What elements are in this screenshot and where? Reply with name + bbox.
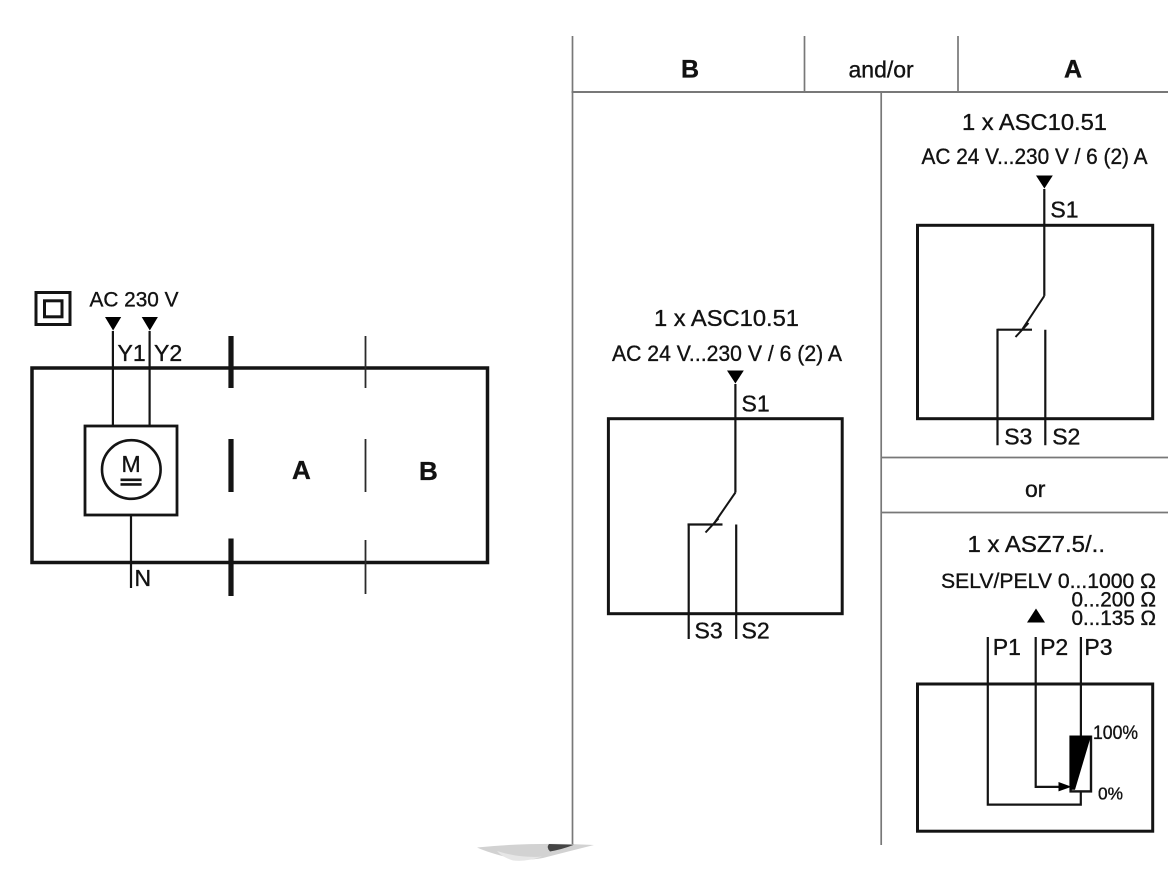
svg-text:A: A <box>292 455 311 485</box>
svg-text:P2: P2 <box>1040 634 1068 660</box>
svg-text:P1: P1 <box>993 634 1021 660</box>
svg-text:100%: 100% <box>1093 723 1138 744</box>
svg-text:S3: S3 <box>695 618 723 644</box>
svg-text:or: or <box>1025 476 1046 502</box>
svg-text:N: N <box>135 565 152 591</box>
svg-text:0...135 Ω: 0...135 Ω <box>1072 607 1157 630</box>
svg-text:Y2: Y2 <box>154 340 182 366</box>
svg-text:Y1: Y1 <box>118 340 146 366</box>
svg-text:1 x ASZ7.5/..: 1 x ASZ7.5/.. <box>968 531 1106 557</box>
svg-text:1 x ASC10.51: 1 x ASC10.51 <box>654 305 799 331</box>
svg-text:M: M <box>122 451 141 477</box>
svg-text:A: A <box>1064 56 1082 84</box>
svg-text:S3: S3 <box>1004 423 1032 449</box>
svg-text:1 x ASC10.51: 1 x ASC10.51 <box>962 109 1107 135</box>
svg-text:AC 24 V...230 V / 6 (2) A: AC 24 V...230 V / 6 (2) A <box>612 341 842 366</box>
svg-text:P3: P3 <box>1084 634 1112 660</box>
svg-text:S1: S1 <box>1050 196 1078 222</box>
svg-text:AC 24 V...230 V / 6 (2) A: AC 24 V...230 V / 6 (2) A <box>922 144 1148 169</box>
svg-text:S2: S2 <box>742 618 770 644</box>
svg-text:and/or: and/or <box>849 57 915 83</box>
svg-text:S2: S2 <box>1052 423 1080 449</box>
svg-text:0%: 0% <box>1098 784 1123 804</box>
svg-text:AC 230 V: AC 230 V <box>90 289 179 312</box>
svg-text:B: B <box>681 56 699 84</box>
svg-text:S1: S1 <box>742 390 770 416</box>
svg-text:B: B <box>419 456 438 486</box>
